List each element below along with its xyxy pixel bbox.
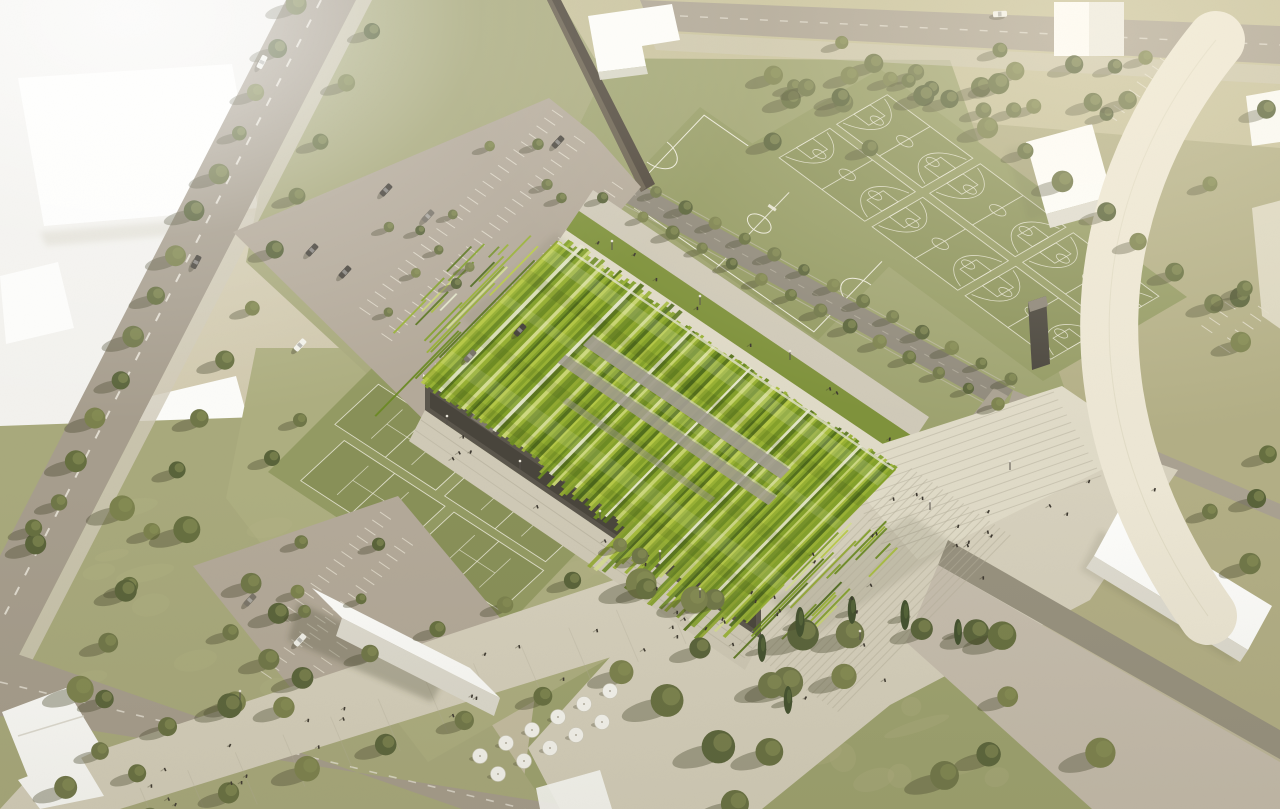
aerial-rendering: Aerial architectural rendering of a spor…	[0, 0, 1280, 809]
light-overlays	[0, 0, 1280, 809]
scene-svg	[0, 0, 1280, 809]
